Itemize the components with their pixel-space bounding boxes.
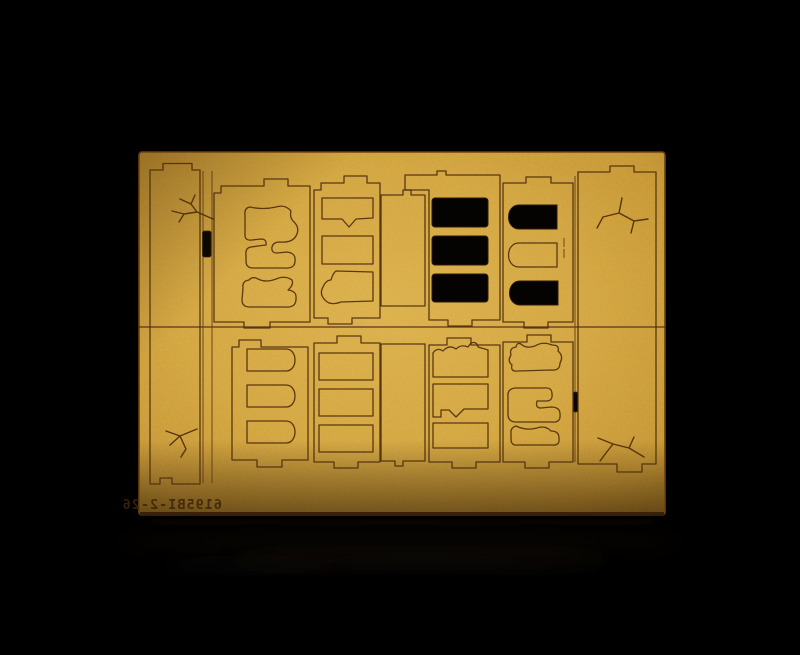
photo-canvas: 6195BI-2-26	[0, 0, 800, 655]
removed-window-hole	[432, 198, 488, 227]
removed-slot-hole	[203, 231, 212, 257]
removed-arched-window-hole	[509, 205, 558, 229]
removed-sliver-hole	[574, 392, 578, 412]
photo-stage: 6195BI-2-26	[0, 0, 800, 655]
removed-arched-window-hole	[510, 281, 559, 305]
removed-window-hole	[432, 274, 488, 302]
part-number-engraving: 6195BI-2-26	[122, 497, 222, 513]
sheet-texture	[139, 152, 665, 515]
removed-window-hole	[432, 236, 488, 265]
mdf-sheet: 6195BI-2-26	[122, 152, 665, 516]
